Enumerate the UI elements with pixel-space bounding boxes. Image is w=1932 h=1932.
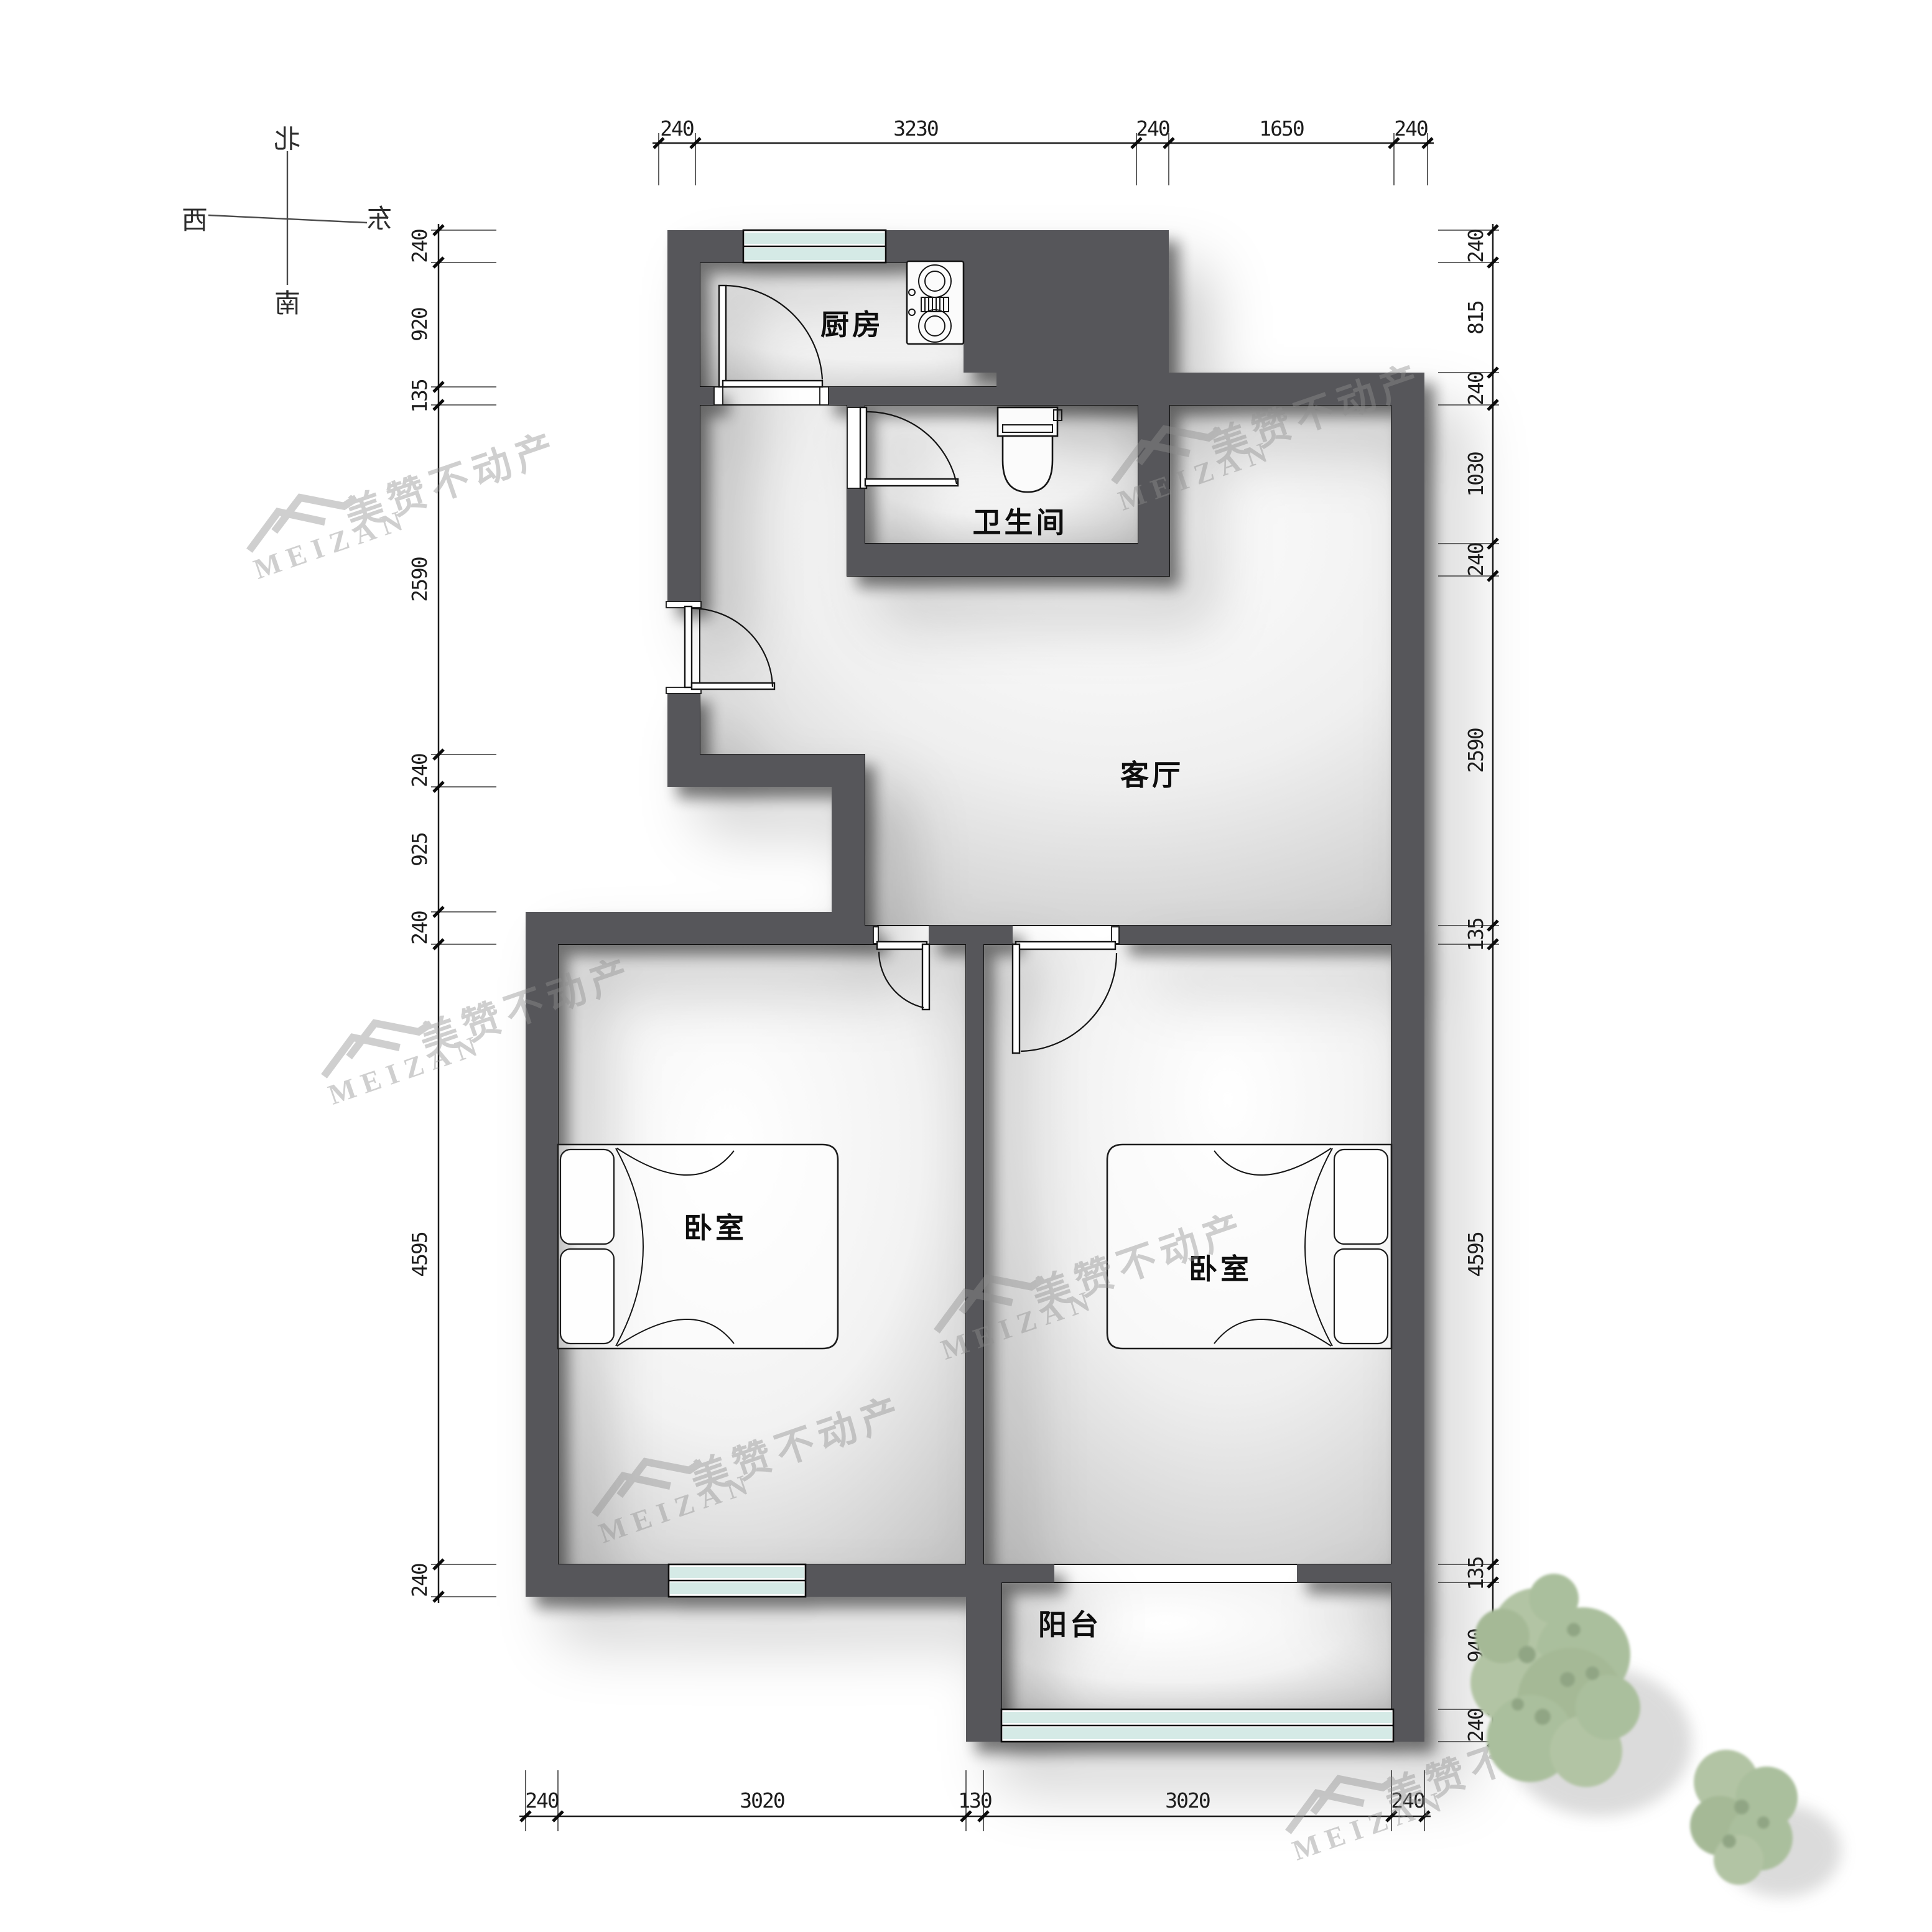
wall-segment	[667, 387, 718, 405]
compass-east-label: 东	[366, 204, 392, 233]
balcony-floor	[1001, 1582, 1391, 1709]
dimension-value: 240	[1464, 1709, 1488, 1742]
svg-text:美赞不动产: 美赞不动产	[340, 425, 565, 538]
dimension-right: 240 815 240 1030 240 2590 135 4595 135 9…	[1438, 224, 1499, 1748]
room-label-bedroom-left: 卧室	[684, 1212, 747, 1244]
wall-segment	[964, 262, 996, 373]
room-label-living: 客厅	[1120, 759, 1184, 791]
wall-shaft-block	[996, 230, 1169, 373]
room-label-bathroom: 卫生间	[973, 506, 1068, 539]
wall-segment	[824, 387, 996, 405]
balcony-window-icon	[1001, 1709, 1393, 1742]
dimension-value: 4595	[407, 1232, 432, 1277]
dimension-value: 240	[1464, 230, 1488, 263]
dimension-value: 240	[1136, 116, 1169, 141]
dimension-value: 3230	[893, 116, 938, 141]
dimension-value: 240	[407, 1564, 432, 1597]
dimension-value: 240	[407, 754, 432, 787]
tree-icon	[1690, 1750, 1841, 1897]
wall-segment	[526, 1564, 669, 1597]
dimension-top: 240 3230 240 1650 240	[653, 116, 1434, 185]
dimension-value: 240	[1394, 116, 1428, 141]
dimension-value: 240	[407, 911, 432, 945]
dimension-value: 135	[407, 379, 432, 413]
wall-segment	[1297, 1564, 1391, 1582]
wall-segment	[847, 544, 1169, 576]
wall-segment	[667, 230, 700, 606]
wall-segment	[996, 373, 1169, 405]
wall-segment	[667, 755, 865, 787]
dimension-value: 240	[407, 230, 432, 263]
wall-segment	[966, 1564, 1001, 1742]
dimension-value: 240	[660, 116, 694, 141]
dimension-value: 240	[1464, 372, 1488, 406]
watermark: MEIZAN 美赞不动产	[237, 412, 570, 585]
wall-segment	[1393, 1709, 1424, 1742]
wall-segment	[526, 912, 865, 944]
compass-north-label: 北	[274, 124, 300, 154]
dimension-left: 240 920 135 2590 240 925 240 4595 240	[407, 224, 496, 1603]
bed-left-icon	[558, 1145, 838, 1349]
dimension-value: 240	[1464, 543, 1488, 577]
room-label-balcony: 阳台	[1038, 1609, 1102, 1641]
dimension-value: 1030	[1464, 452, 1488, 497]
dimension-value: 4595	[1464, 1232, 1488, 1277]
wall-segment	[966, 944, 983, 1564]
dimension-value: 135	[1464, 1557, 1488, 1591]
wall-segment	[1119, 926, 1391, 944]
dimension-value: 815	[1464, 301, 1488, 335]
room-label-kitchen: 厨房	[820, 309, 884, 341]
wall-segment	[886, 230, 996, 262]
bedroom-left-window-icon	[669, 1564, 806, 1597]
dimension-value: 3020	[1165, 1788, 1210, 1813]
dimension-value: 1650	[1259, 116, 1304, 141]
wall-segment	[806, 1564, 966, 1597]
dimension-value: 925	[407, 833, 432, 866]
dimension-value: 3020	[740, 1788, 784, 1813]
compass-south-label: 南	[274, 289, 300, 318]
floor-plan-page: 厨房 卫生间 客厅 卧室 卧室 阳台 240 3230 240 1650 240…	[0, 0, 1932, 1932]
dimension-value: 130	[958, 1788, 992, 1813]
stove-icon	[907, 261, 964, 344]
wall-segment	[1391, 405, 1424, 1742]
compass-icon: 北 南 西 东	[182, 124, 392, 318]
dimension-value: 135	[1464, 918, 1488, 952]
dimension-value: 920	[407, 308, 432, 341]
floor-plan-canvas: 厨房 卫生间 客厅 卧室 卧室 阳台 240 3230 240 1650 240…	[0, 0, 1932, 1932]
dimension-value: 2590	[1464, 728, 1488, 773]
dimension-value: 240	[525, 1788, 559, 1813]
dimension-value: 2590	[407, 557, 432, 602]
wall-segment	[929, 926, 1013, 944]
kitchen-window-icon	[743, 230, 886, 262]
wall-segment	[983, 1564, 1054, 1582]
compass-west-label: 西	[182, 205, 208, 235]
